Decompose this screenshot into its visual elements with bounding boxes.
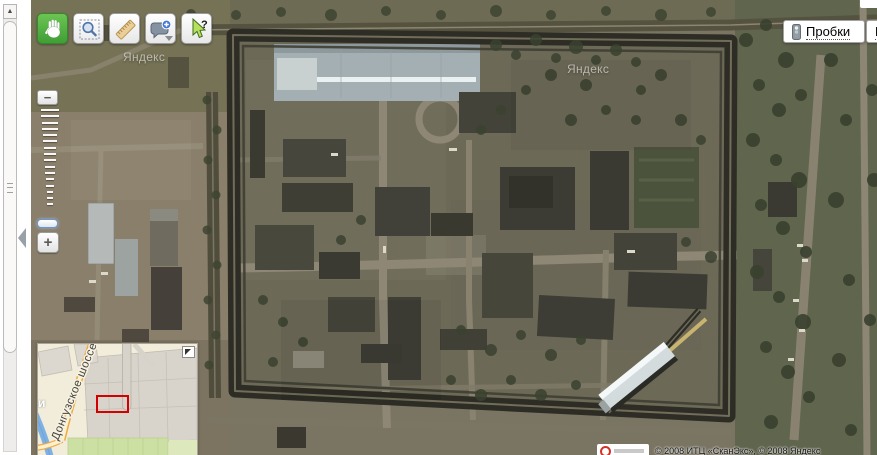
query-cursor-icon: ? — [182, 14, 213, 45]
page-left-gutter: ▲ — [0, 0, 31, 455]
traffic-button[interactable]: Пробки — [783, 20, 865, 43]
zoom-slider-handle[interactable] — [37, 219, 58, 228]
clipped-right-button[interactable]: П — [866, 20, 877, 43]
magnifier-area-tool-button[interactable] — [73, 13, 104, 44]
magnifier-icon — [74, 14, 105, 45]
zoom-in-button[interactable]: + — [37, 232, 59, 253]
map-toolbar: ? — [37, 13, 212, 44]
minimap-collapse-button[interactable] — [182, 346, 195, 358]
scrollbar-grip-icon — [7, 183, 13, 193]
whats-here-tool-button[interactable]: ? — [181, 13, 212, 44]
zoom-ticks[interactable] — [39, 109, 61, 210]
scroll-up-icon: ▲ — [7, 8, 14, 15]
minimap-scheme: Донгузское шоссе — [38, 344, 197, 455]
ruler-tool-button[interactable] — [109, 13, 140, 44]
minimap-collapse-icon — [185, 349, 191, 355]
scrollbar-up-button[interactable]: ▲ — [3, 4, 17, 19]
ruler-icon — [110, 14, 141, 45]
map-canvas[interactable]: Яндекс Яндекс — [31, 0, 877, 455]
yandex-watermark: Яндекс — [567, 62, 609, 76]
traffic-light-icon — [792, 24, 801, 40]
pan-tool-button[interactable] — [37, 13, 68, 44]
minimap-place-label: и — [38, 396, 45, 410]
hand-icon — [38, 14, 69, 45]
copyright-text: © 2008 ИТЦ «СканЭкс», © 2008 Яндекс — [655, 446, 820, 455]
sidebar-collapse-arrow-icon[interactable] — [18, 228, 26, 248]
scrollbar-thumb[interactable] — [3, 21, 17, 353]
clipped-panel-fragment — [860, 0, 877, 8]
traffic-button-label: Пробки — [806, 24, 850, 40]
scanex-ring-icon — [600, 446, 611, 455]
yandex-watermark: Яндекс — [123, 50, 165, 64]
zoom-out-button[interactable]: − — [37, 90, 58, 105]
overview-minimap[interactable]: Донгузское шоссе и — [37, 343, 198, 455]
svg-text:?: ? — [201, 19, 208, 31]
dropdown-caret-icon — [165, 36, 173, 41]
scanex-logo — [597, 444, 649, 455]
yandex-maps-page: ▲ — [0, 0, 877, 455]
placemark-tool-button[interactable] — [145, 13, 176, 44]
